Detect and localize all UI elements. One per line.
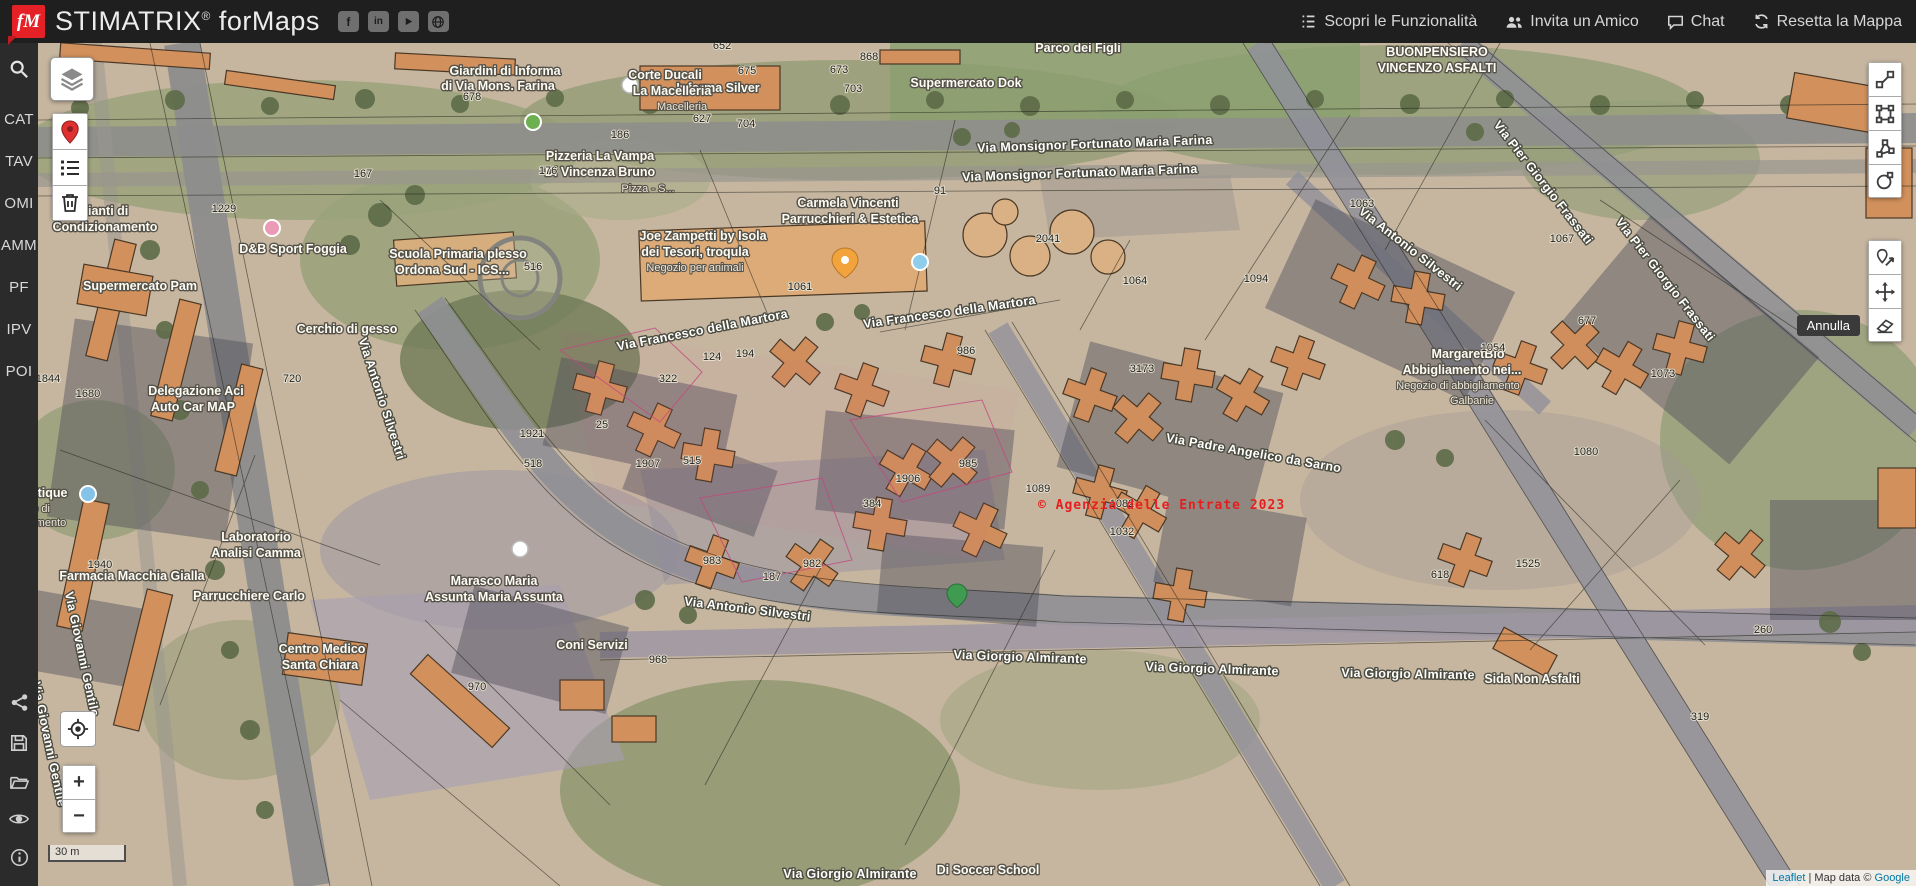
menu-item-reset-map[interactable]: Resetta la Mappa (1753, 13, 1902, 31)
parcel-number: 704 (737, 118, 755, 130)
poi-label: ary boutique (38, 486, 68, 500)
sidebar-item-cat[interactable]: CAT (4, 111, 34, 128)
poi-label: Auto Car MAP (151, 400, 235, 414)
parcel-number: 968 (649, 654, 667, 666)
sidebar: CAT TAV OMI AMM PF IPV POI (0, 43, 38, 886)
poi-label: Galbanie (1450, 395, 1494, 407)
poi-label: Delegazione Aci (148, 384, 243, 398)
parcel-number: 25 (596, 419, 608, 431)
poi-label: Analisi Camma (211, 546, 302, 560)
parcel-number: 983 (703, 555, 721, 567)
parcel-number: 1061 (788, 281, 812, 293)
parcel-number: 982 (803, 558, 821, 570)
parcel-number: 1032 (1110, 526, 1134, 538)
poi-label: Centro Medico (279, 642, 366, 656)
eye-icon[interactable] (9, 812, 29, 831)
parcel-number: 1680 (76, 388, 100, 400)
menu-label: Scopri le Funzionalità (1324, 13, 1477, 31)
linkedin-icon[interactable]: in (368, 11, 389, 32)
poi-label: Supermercato Pam (83, 279, 197, 293)
parcel-number: 1940 (88, 559, 112, 571)
polygon-icon (1874, 137, 1896, 159)
poi-white-icon (512, 541, 528, 557)
parcel-number: 1229 (212, 203, 236, 215)
parcel-number: 260 (1754, 624, 1772, 636)
parcel-number: 985 (959, 458, 977, 470)
parcel-number: 1907 (636, 458, 660, 470)
marker-icon (60, 120, 80, 144)
parcel-number: 319 (1691, 711, 1709, 723)
poi-label: Parrucchieri & Estetica (782, 212, 920, 226)
parcel-number: 516 (524, 261, 542, 273)
marker-tools (52, 113, 88, 221)
layers-control[interactable] (50, 57, 94, 101)
target-icon (67, 718, 89, 740)
edit-layers-button[interactable] (1868, 240, 1902, 274)
poi-label: Cerchio di gesso (297, 322, 398, 336)
sidebar-item-tav[interactable]: TAV (5, 153, 33, 170)
parcel-number: 618 (1431, 569, 1449, 581)
locate-button[interactable] (60, 711, 96, 747)
parcel-number: 2041 (1036, 233, 1060, 245)
list-icon (60, 159, 80, 177)
save-icon[interactable] (10, 734, 28, 757)
attribution: Leaflet | Map data © Google (1766, 870, 1916, 886)
poi-label: Marasco Maria (451, 574, 539, 588)
edit-toolbar (1868, 240, 1902, 342)
app-logo[interactable]: fM (12, 5, 45, 38)
poi-label: Giardini di Informa (449, 64, 561, 78)
refresh-icon (1753, 13, 1770, 30)
zoom-control: + − (62, 765, 96, 833)
draw-polyline-button[interactable] (1868, 62, 1902, 96)
info-icon[interactable] (10, 848, 29, 872)
social-links: f in (338, 11, 449, 32)
parcel-number: 986 (957, 345, 975, 357)
parcel-number: 1064 (1123, 275, 1147, 287)
parcel-number: 652 (713, 43, 731, 52)
draw-toolbar (1868, 62, 1902, 198)
layers-icon (58, 65, 86, 93)
map-canvas[interactable]: Via Monsignor Fortunato Maria FarinaVia … (38, 43, 1916, 886)
parcel-number: 1525 (1516, 558, 1540, 570)
move-button[interactable] (1868, 274, 1902, 308)
poi-label: Negozio di (38, 503, 50, 515)
menu-item-invite[interactable]: Invita un Amico (1505, 13, 1639, 31)
poi-label: di Via Mons. Farina (441, 79, 556, 93)
parcel-number: 518 (524, 458, 542, 470)
rectangle-icon (1874, 103, 1896, 125)
poi-label: Santa Chiara (282, 658, 359, 672)
parcel-number: 970 (468, 681, 486, 693)
poi-label: Farmacia Macchia Gialla (59, 569, 205, 583)
parcel-number: 1089 (1026, 483, 1050, 495)
sidebar-item-pf[interactable]: PF (9, 279, 29, 296)
parcel-number: 384 (863, 498, 881, 510)
parcel-number: 3173 (1130, 363, 1154, 375)
poi-label: Supermercato Dok (910, 76, 1021, 90)
parcel-number: 678 (463, 91, 481, 103)
leaflet-link[interactable]: Leaflet (1772, 872, 1805, 884)
poi-label: BUONPENSIERO (1386, 45, 1488, 59)
poi-label: Assunta Maria Assunta (425, 590, 564, 604)
add-marker-button[interactable] (52, 113, 88, 149)
poi-label: Negozio per animali (646, 262, 743, 274)
polyline-icon (1874, 69, 1896, 91)
menu-item-features[interactable]: Scopri le Funzionalità (1300, 13, 1477, 31)
poi-label: Coni Servizi (556, 638, 628, 652)
undo-tooltip[interactable]: Annulla (1797, 315, 1860, 336)
erase-button[interactable] (1868, 308, 1902, 342)
parcel-number: 186 (611, 129, 629, 141)
poi-label: Condizionamento (53, 220, 158, 234)
poi-label: Di Soccer School (937, 863, 1040, 877)
google-link[interactable]: Google (1875, 872, 1910, 884)
poi-label: abbigliamento (38, 517, 66, 529)
parcel-number: 515 (683, 455, 701, 467)
menu-label: Invita un Amico (1530, 13, 1639, 31)
agenzia-watermark: © Agenzia delle Entrate 2023 (1038, 498, 1285, 513)
parcel-number: 91 (934, 185, 946, 197)
parcel-number: 720 (283, 373, 301, 385)
trash-icon (61, 193, 79, 213)
parcel-number: 675 (738, 65, 756, 77)
poi-label: Macelleria (657, 101, 708, 113)
poi-label: Di Vincenza Bruno (545, 165, 656, 179)
parcel-number: 1080 (1574, 446, 1598, 458)
poi-label: Carmela Vincenti (797, 196, 898, 210)
users-icon (1505, 14, 1523, 30)
poi-label: Joe Zampetti by Isola (639, 229, 767, 243)
poi-label: Scuola Primaria plesso (389, 247, 527, 261)
edit-layers-icon (1874, 247, 1896, 269)
poi-label: VINCENZO ASFALTI (1378, 61, 1497, 75)
parcel-number: 322 (659, 373, 677, 385)
stimatrix-formaps-app: fM STIMATRIX® forMaps f in Scopri le Fun… (0, 0, 1916, 886)
eraser-icon (1874, 314, 1896, 336)
poi-label: Corte Ducali (628, 68, 702, 82)
page-title: STIMATRIX® forMaps (55, 6, 320, 37)
poi-label: D&B Sport Foggia (239, 242, 348, 256)
folder-icon[interactable] (10, 774, 29, 795)
parcel-number: 1054 (1481, 342, 1505, 354)
poi-label: Sida Non Asfalti (1484, 672, 1579, 686)
parcel-number: 187 (763, 571, 781, 583)
menu-item-chat[interactable]: Chat (1667, 13, 1725, 31)
poi-blue-icon (80, 486, 96, 502)
poi-label: Pizza - S... (621, 183, 674, 195)
street-label: Via Giorgio Almirante (783, 867, 916, 881)
menu-label: Resetta la Mappa (1777, 13, 1902, 31)
youtube-icon[interactable] (398, 11, 419, 32)
share-icon[interactable] (10, 693, 29, 717)
parcel-number: 194 (736, 348, 754, 360)
draw-circle-button[interactable] (1868, 164, 1902, 198)
chat-icon (1667, 14, 1684, 30)
delete-markers-button[interactable] (52, 185, 88, 221)
sidebar-item-poi[interactable]: POI (6, 363, 33, 380)
circle-icon (1874, 170, 1896, 192)
parcel-number: 1844 (38, 373, 60, 385)
draw-polygon-button[interactable] (1868, 130, 1902, 164)
parcel-number: 1063 (1350, 198, 1374, 210)
sidebar-item-amm[interactable]: AMM (1, 237, 37, 254)
poi-label: Parco dei Figli (1035, 43, 1120, 55)
poi-label: Laboratorio (221, 530, 291, 544)
facebook-icon[interactable]: f (338, 11, 359, 32)
poi-label: Ordona Sud - ICS... (395, 263, 509, 277)
marker-list-button[interactable] (52, 149, 88, 185)
parcel-number: 167 (354, 168, 372, 180)
list-icon (1300, 13, 1317, 30)
poi-label: La Macelleria (633, 84, 713, 98)
parcel-number: 1921 (520, 428, 544, 440)
poi-label: Parrucchiere Carlo (193, 589, 305, 603)
parcel-number: 1073 (1651, 368, 1675, 380)
poi-label: dei Tesori, troqula (641, 245, 749, 259)
top-menu: Scopri le Funzionalità Invita un Amico C… (1300, 13, 1902, 31)
parcel-number: 1906 (896, 473, 920, 485)
parcel-number: 677 (1578, 315, 1596, 327)
poi-label: Abbigliamento nei... (1403, 363, 1522, 377)
poi-shop-icon (264, 220, 280, 236)
parcel-number: 627 (693, 113, 711, 125)
zoom-out-button[interactable]: − (62, 799, 96, 833)
street-label: Via Giorgio Almirante (1341, 666, 1475, 682)
parcel-number: 703 (844, 83, 862, 95)
parcel-number: 124 (703, 351, 721, 363)
parcel-number: 868 (860, 51, 878, 63)
parcel-number: 1094 (1244, 273, 1268, 285)
poi-park-icon (525, 114, 541, 130)
parcel-number: 176 (539, 165, 557, 177)
poi-label: Negozio di abbigliamento (1396, 380, 1520, 392)
move-icon (1874, 281, 1896, 303)
zoom-in-button[interactable]: + (62, 765, 96, 799)
draw-rectangle-button[interactable] (1868, 96, 1902, 130)
scale-bar: 30 m (48, 845, 126, 862)
parcel-number: 1067 (1550, 233, 1574, 245)
parcel-number: 673 (830, 64, 848, 76)
logo-text: fM (17, 11, 40, 33)
menu-label: Chat (1691, 13, 1725, 31)
sidebar-item-ipv[interactable]: IPV (6, 321, 31, 338)
satellite-basemap: Via Monsignor Fortunato Maria FarinaVia … (38, 43, 1916, 886)
app-header: fM STIMATRIX® forMaps f in Scopri le Fun… (0, 0, 1916, 43)
sidebar-item-omi[interactable]: OMI (4, 195, 33, 212)
poi-blue-icon (912, 254, 928, 270)
poi-label: Pizzeria La Vampa (546, 149, 655, 163)
sidebar-bottom-icons (9, 693, 29, 872)
search-icon[interactable] (9, 59, 29, 84)
globe-icon[interactable] (428, 11, 449, 32)
